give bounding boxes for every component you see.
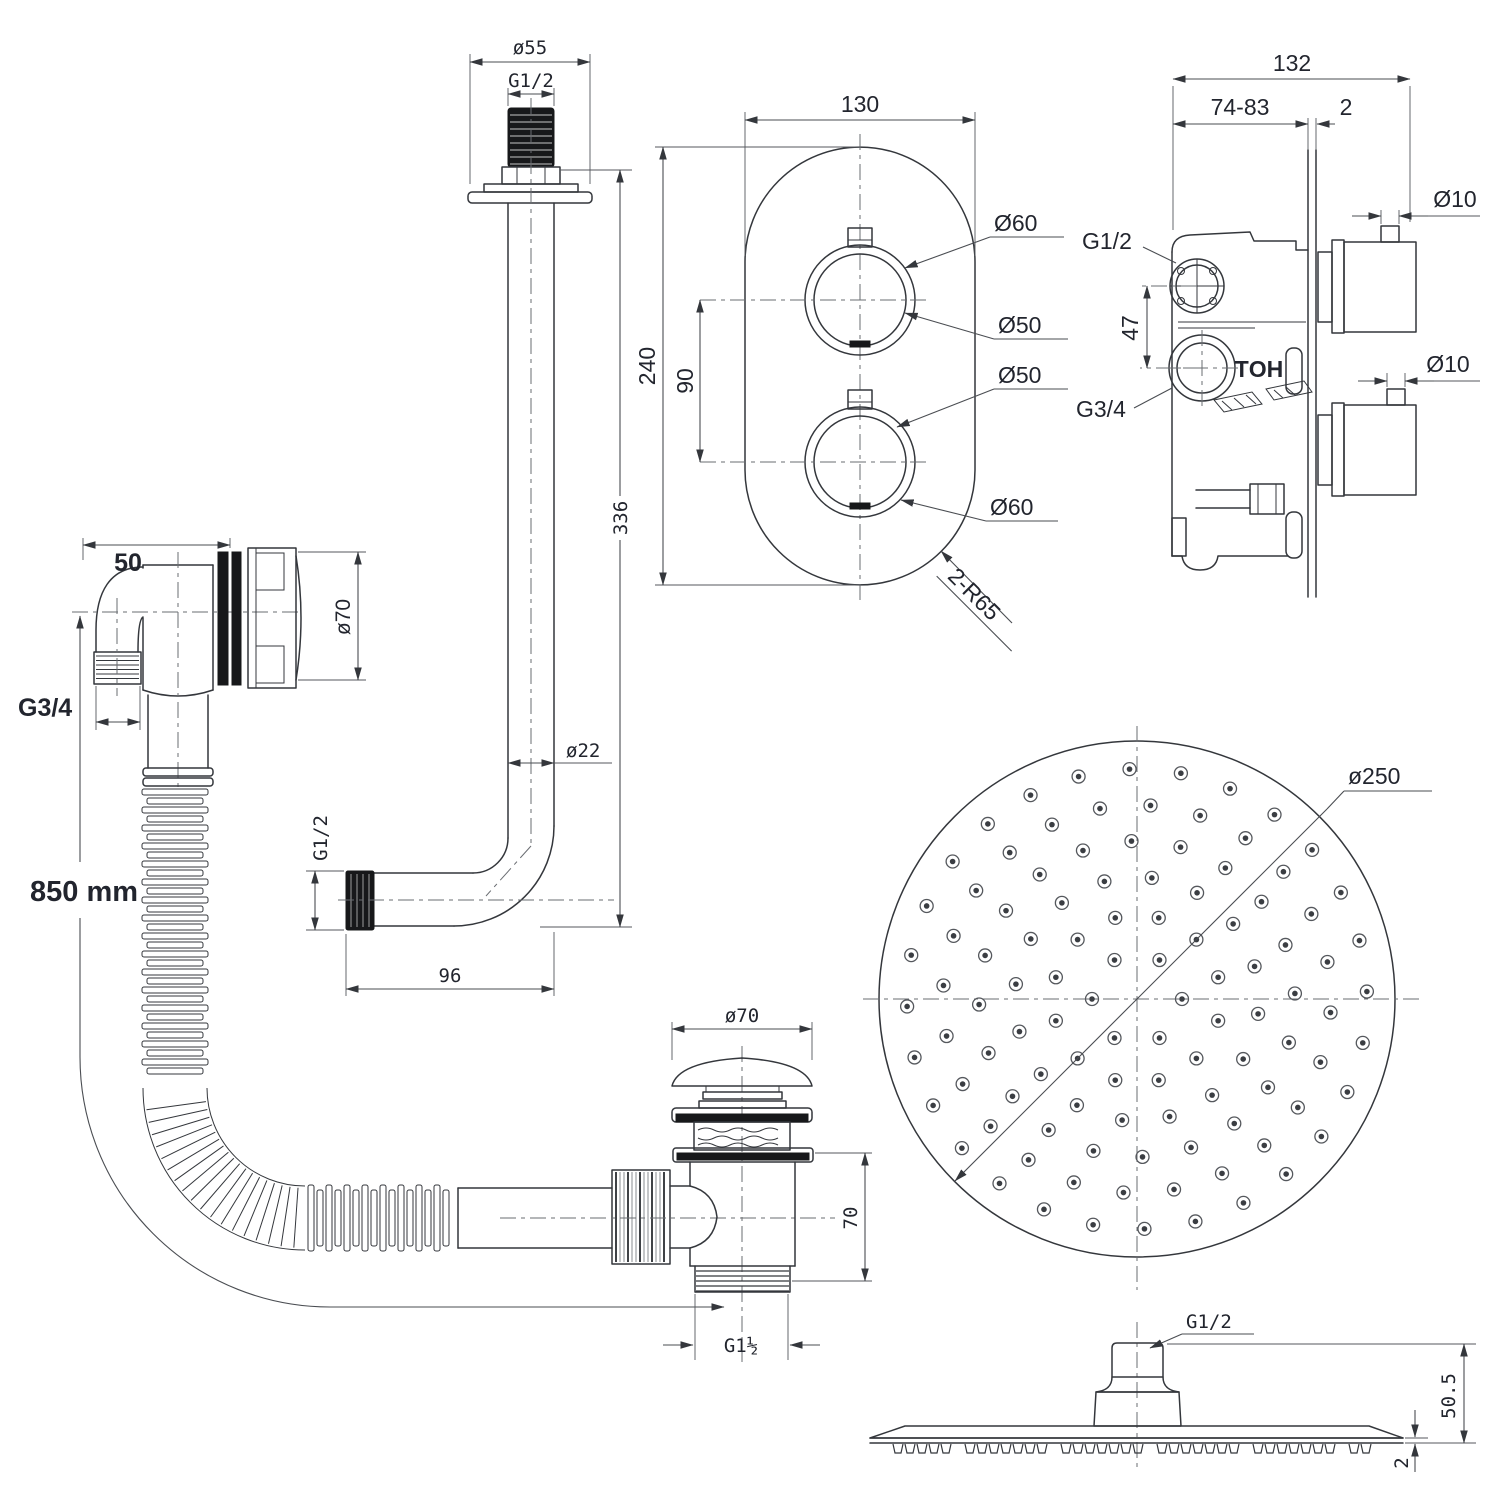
- dim-overflow-thread: G3/4: [18, 694, 72, 722]
- technical-drawing-canvas: ø55 G1/2: [0, 0, 1500, 1500]
- dim-hose-length: 850 mm: [30, 876, 138, 908]
- dim-arm-end-thread: G1/2: [310, 815, 332, 861]
- dim-head-side-height: 50.5: [1438, 1373, 1460, 1419]
- plate-knob-bottom: [700, 390, 930, 517]
- dim-head-side-edge: 2: [1391, 1457, 1413, 1468]
- dim-waste-cap-dia: ø70: [725, 1005, 759, 1027]
- dim-overflow-face-dia: ø70: [332, 599, 355, 635]
- control-plate-view: 130 240 90 Ø60 Ø50 Ø50 Ø60 2-R65: [634, 91, 1068, 651]
- dim-arm-pipe-dia: ø22: [566, 740, 600, 762]
- dim-valve-recess: 74-83: [1211, 94, 1270, 120]
- valve-spindle-bottom: [1318, 389, 1416, 496]
- dim-valve-inlet-bottom: G3/4: [1076, 396, 1126, 422]
- dim-head-side-thread: G1/2: [1186, 1311, 1232, 1333]
- dim-waste-outlet-thread: G1½: [724, 1335, 758, 1357]
- valve-bracket-hatch: [1214, 381, 1312, 412]
- dim-plate-top-outer: Ø60: [994, 210, 1037, 236]
- valve-spindle-top: [1318, 226, 1416, 333]
- overflow-face: [218, 548, 301, 688]
- dim-valve-inlet-top: G1/2: [1082, 228, 1132, 254]
- hose-nut: [612, 1170, 670, 1264]
- dim-valve-width: 132: [1273, 50, 1311, 76]
- dim-plate-corner-radius: 2-R65: [943, 563, 1006, 626]
- dim-arm-top-thread: G1/2: [508, 70, 554, 92]
- arm-pipe: [374, 203, 554, 926]
- dim-head-dia: ø250: [1348, 763, 1400, 789]
- dim-plate-height: 240: [634, 347, 660, 385]
- valve-body-view: 132 74-83 2: [1076, 50, 1480, 597]
- dim-valve-plate-thickness: 2: [1340, 94, 1353, 120]
- valve-body: [1172, 232, 1308, 570]
- arm-ceiling-flange: [468, 167, 592, 203]
- technical-drawing: ø55 G1/2: [0, 0, 1500, 1500]
- dim-valve-spindle-bottom: Ø10: [1426, 351, 1469, 377]
- dim-arm-length: 336: [610, 501, 632, 535]
- dim-overflow-depth: 50: [114, 549, 142, 577]
- dim-plate-bottom-outer: Ø60: [990, 494, 1033, 520]
- bath-waste-view: ø70: [500, 1005, 872, 1365]
- shower-head-side-view: G1/2 50.5 2: [870, 1311, 1476, 1472]
- dim-plate-knob-spacing: 90: [672, 368, 698, 394]
- shower-head-face-view: ø250: [863, 726, 1432, 1290]
- dim-valve-port-spacing: 47: [1117, 315, 1143, 341]
- dim-waste-height: 70: [840, 1207, 862, 1230]
- dim-valve-spindle-top: Ø10: [1433, 186, 1476, 212]
- overflow-hose: [142, 695, 670, 1264]
- dim-plate-width: 130: [841, 91, 879, 117]
- valve-hot-marking: HOT: [1235, 356, 1284, 382]
- ceiling-arm-view: ø55 G1/2: [306, 37, 632, 996]
- dim-arm-horizontal: 96: [439, 965, 462, 987]
- overflow-body: [72, 552, 300, 790]
- valve-wall-plate: [1308, 150, 1316, 597]
- plate-knob-top: [700, 228, 930, 355]
- dim-arm-flange-dia: ø55: [513, 37, 547, 59]
- dim-plate-top-inner: Ø50: [998, 312, 1041, 338]
- dim-plate-bottom-inner: Ø50: [998, 362, 1041, 388]
